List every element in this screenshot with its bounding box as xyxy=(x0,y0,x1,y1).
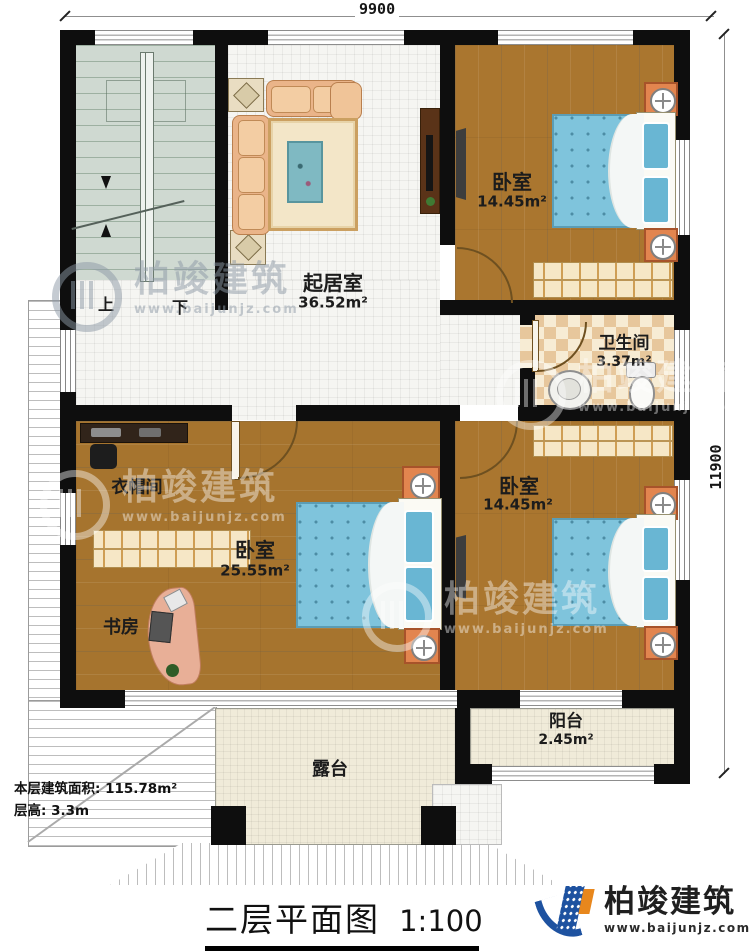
hallway-floor xyxy=(76,280,440,420)
wall-bottom-3 xyxy=(622,690,690,708)
dim-width-label: 9900 xyxy=(355,0,399,18)
wall-hall-master-1 xyxy=(76,405,232,421)
sofa-corner xyxy=(330,82,362,120)
terrace-pillar-right xyxy=(421,806,456,845)
balcony-corner-right xyxy=(654,764,690,784)
pillow xyxy=(642,526,670,572)
wall-bedrooms-divider xyxy=(440,405,455,690)
dim-line-right xyxy=(724,34,725,774)
floor-plan: 上 下 起居室 36.52m² 卧室 14.45m² 卫生间 3.37m² 卧室… xyxy=(0,0,750,952)
wall-stairwell xyxy=(215,45,228,310)
window-bathroom xyxy=(674,330,690,410)
wall-right-4 xyxy=(674,580,690,782)
title-underline-thick xyxy=(205,946,479,951)
dim-height-label: 11900 xyxy=(707,427,725,507)
wall-bottom-2 xyxy=(457,690,520,708)
nightstand xyxy=(644,82,678,116)
bathroom-name: 卫生间 xyxy=(599,336,650,353)
floor-area-note: 本层建筑面积: 115.78m² xyxy=(14,777,177,797)
wall-left-3 xyxy=(60,545,76,708)
wall-bathroom-bottom xyxy=(518,405,674,421)
toilet-bowl xyxy=(629,376,655,410)
living-room-area: 36.52m² xyxy=(298,296,368,311)
study-plant xyxy=(166,664,179,677)
nightstand xyxy=(402,466,440,502)
bedroom-right-tv xyxy=(456,535,466,599)
rug xyxy=(268,118,358,231)
balcony-corner-left xyxy=(455,764,492,784)
bed-mattress xyxy=(552,114,644,228)
balcony-railing xyxy=(492,766,654,781)
side-table-top xyxy=(228,78,264,112)
study-name: 书房 xyxy=(103,619,139,637)
wall-top-2 xyxy=(193,30,268,45)
bedroom-master-area: 25.55m² xyxy=(220,564,290,579)
bedroom-right-name: 卧室 xyxy=(499,476,539,496)
window-cloakroom xyxy=(60,493,76,545)
sofa-left xyxy=(232,115,270,235)
bedroom-top-tv xyxy=(456,128,466,200)
roof-below-terrace xyxy=(110,843,560,885)
stair-up-label: 上 xyxy=(98,297,114,313)
living-room-name: 起居室 xyxy=(303,273,363,293)
wall-right-3 xyxy=(674,410,690,480)
stair-arrow-up-icon xyxy=(101,224,111,237)
bed-mattress xyxy=(296,502,404,628)
wall-bottom-1 xyxy=(60,690,125,708)
stair-rail xyxy=(140,52,154,282)
corridor-floor xyxy=(440,315,520,405)
balcony-door xyxy=(520,691,622,707)
logo-url: www.baijunjz.com xyxy=(604,921,750,935)
bedroom-right-wardrobe xyxy=(533,425,673,457)
study-monitor xyxy=(148,611,173,643)
bathroom-sink xyxy=(548,370,592,410)
bedroom-top-wardrobe xyxy=(533,262,673,298)
pillow xyxy=(642,122,670,170)
terrace-french-window xyxy=(125,691,457,707)
pillow xyxy=(404,566,434,622)
bedroom-top-name: 卧室 xyxy=(492,172,532,192)
floor-height-note: 层高: 3.3m xyxy=(14,799,89,819)
nightstand xyxy=(404,628,440,664)
wall-living-bedroom xyxy=(440,45,455,245)
terrace-pillar-left xyxy=(211,806,246,845)
window-hall xyxy=(60,330,76,392)
logo-icon xyxy=(540,886,596,944)
stair-arrow-down-icon xyxy=(101,176,111,189)
wall-bathroom-left-2 xyxy=(520,368,535,405)
side-table-bottom xyxy=(230,230,266,265)
roof-left-strip xyxy=(28,300,62,702)
bedroom-right-area: 14.45m² xyxy=(483,498,553,513)
pillow xyxy=(642,176,670,224)
title-block: 二层平面图 1:100 xyxy=(205,893,483,952)
wall-hall-master-2 xyxy=(296,405,460,421)
terrace-name: 露台 xyxy=(312,761,348,779)
pillow xyxy=(404,510,434,564)
balcony-name: 阳台 xyxy=(549,714,583,731)
bed-mattress xyxy=(552,518,644,626)
pillow xyxy=(642,576,670,622)
stair-down-label: 下 xyxy=(172,300,188,316)
wall-left-2 xyxy=(60,392,76,493)
bathroom-area: 3.37m² xyxy=(596,355,651,369)
logo-block: 柏竣建筑 www.baijunjz.com xyxy=(540,886,750,944)
balcony-area: 2.45m² xyxy=(538,733,593,747)
nightstand xyxy=(644,626,678,660)
wall-left-1 xyxy=(60,30,76,330)
window-stairwell xyxy=(95,30,193,45)
dresser-chair xyxy=(90,444,117,469)
nightstand xyxy=(644,228,678,262)
window-bedroom-top-right xyxy=(674,140,690,235)
page-title: 二层平面图 xyxy=(205,900,380,939)
window-bedroom-top xyxy=(498,30,633,45)
tv-cabinet xyxy=(420,108,440,214)
bedroom-top-area: 14.45m² xyxy=(477,195,547,210)
title-scale: 1:100 xyxy=(399,904,483,938)
logo-text: 柏竣建筑 xyxy=(604,886,750,919)
dresser xyxy=(80,423,188,443)
window-living xyxy=(268,30,404,45)
bedroom-master-name: 卧室 xyxy=(235,540,275,560)
wall-top-3 xyxy=(404,30,498,45)
cloakroom-name: 衣帽间 xyxy=(112,480,163,497)
